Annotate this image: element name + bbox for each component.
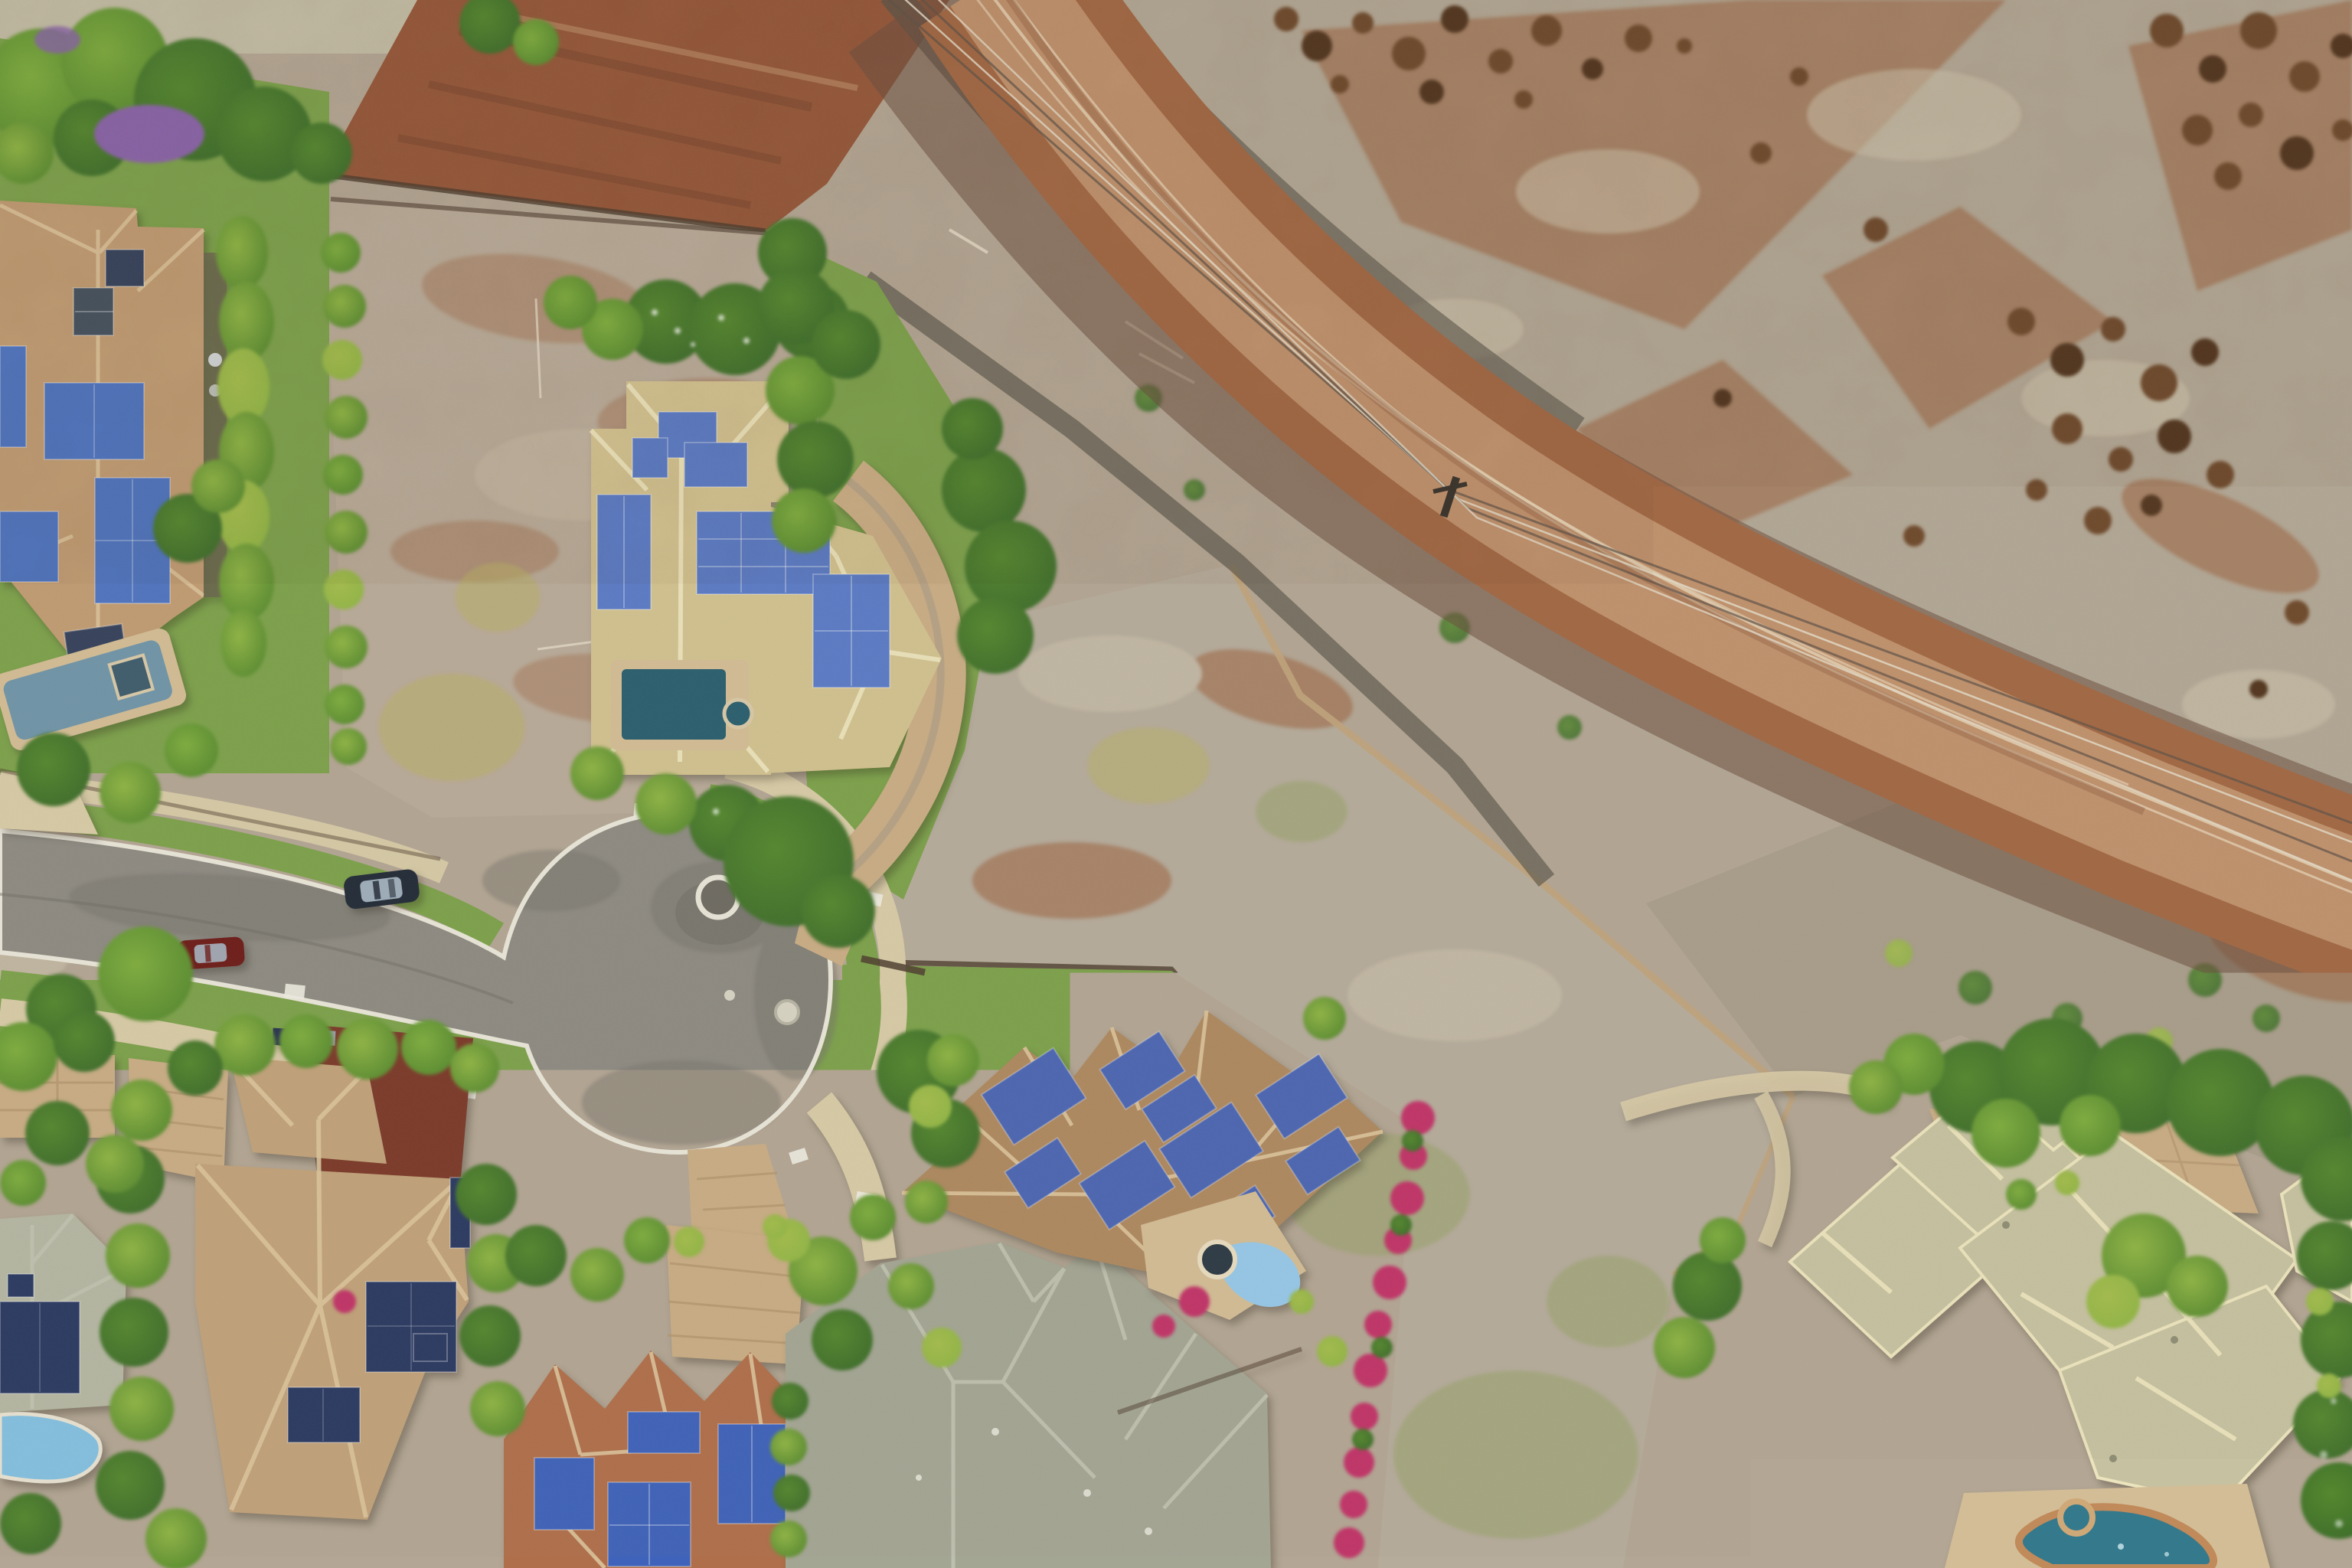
grain-texture: [0, 0, 2352, 1568]
aerial-photo-canvas: [0, 0, 2352, 1568]
aerial-photo: [0, 0, 2352, 1568]
